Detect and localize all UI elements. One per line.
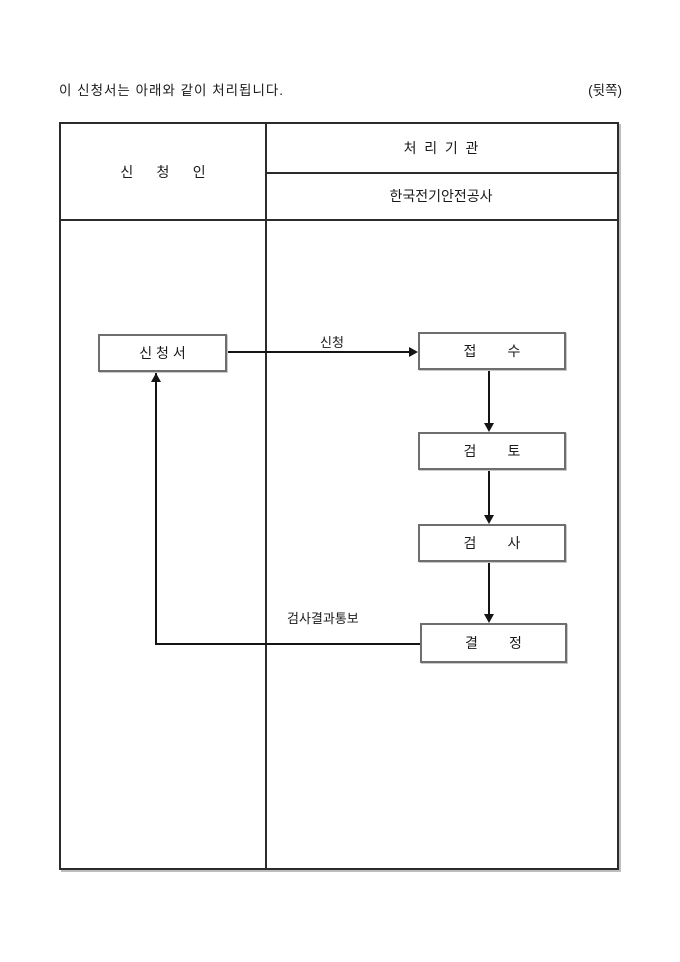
processing-agency-name: 한국전기안전공사 — [265, 172, 617, 219]
apply-edge-line — [227, 351, 412, 353]
arrow-up-icon — [151, 373, 161, 382]
flow-box-receipt: 접 수 — [418, 332, 566, 370]
apply-edge-label: 신청 — [302, 332, 362, 351]
back-side-label: (뒷쪽) — [588, 79, 622, 99]
processing-agency-header: 처 리 기 관 — [265, 124, 617, 172]
form-back-page: 이 신청서는 아래와 같이 처리됩니다. (뒷쪽) 신 청 인 처 리 기 관 … — [0, 0, 680, 962]
result-edge-label: 검사결과통보 — [287, 608, 359, 627]
applicant-column-header: 신 청 인 — [61, 124, 265, 219]
flow-box-inspection: 검 사 — [418, 524, 566, 562]
flow-box-decision: 결 정 — [420, 623, 567, 663]
result-edge-horizontal-line — [155, 643, 420, 645]
arrow-down-icon — [484, 515, 494, 524]
arrow-down-icon — [484, 614, 494, 623]
inspection-to-decision-line — [488, 562, 490, 615]
review-to-inspection-line — [488, 470, 490, 516]
processing-note: 이 신청서는 아래와 같이 처리됩니다. — [59, 79, 284, 99]
flow-box-application: 신 청 서 — [98, 334, 227, 372]
process-table: 신 청 인 처 리 기 관 한국전기안전공사 신청 검사결과통보 신 청 서 접… — [59, 122, 619, 870]
arrow-down-icon — [484, 423, 494, 432]
table-column-divider — [265, 124, 267, 868]
receipt-to-review-line — [488, 370, 490, 424]
flow-box-review: 검 토 — [418, 432, 566, 470]
result-edge-vertical-line — [155, 373, 157, 644]
arrow-right-icon — [409, 347, 418, 357]
table-header-bottom-line — [61, 219, 617, 221]
